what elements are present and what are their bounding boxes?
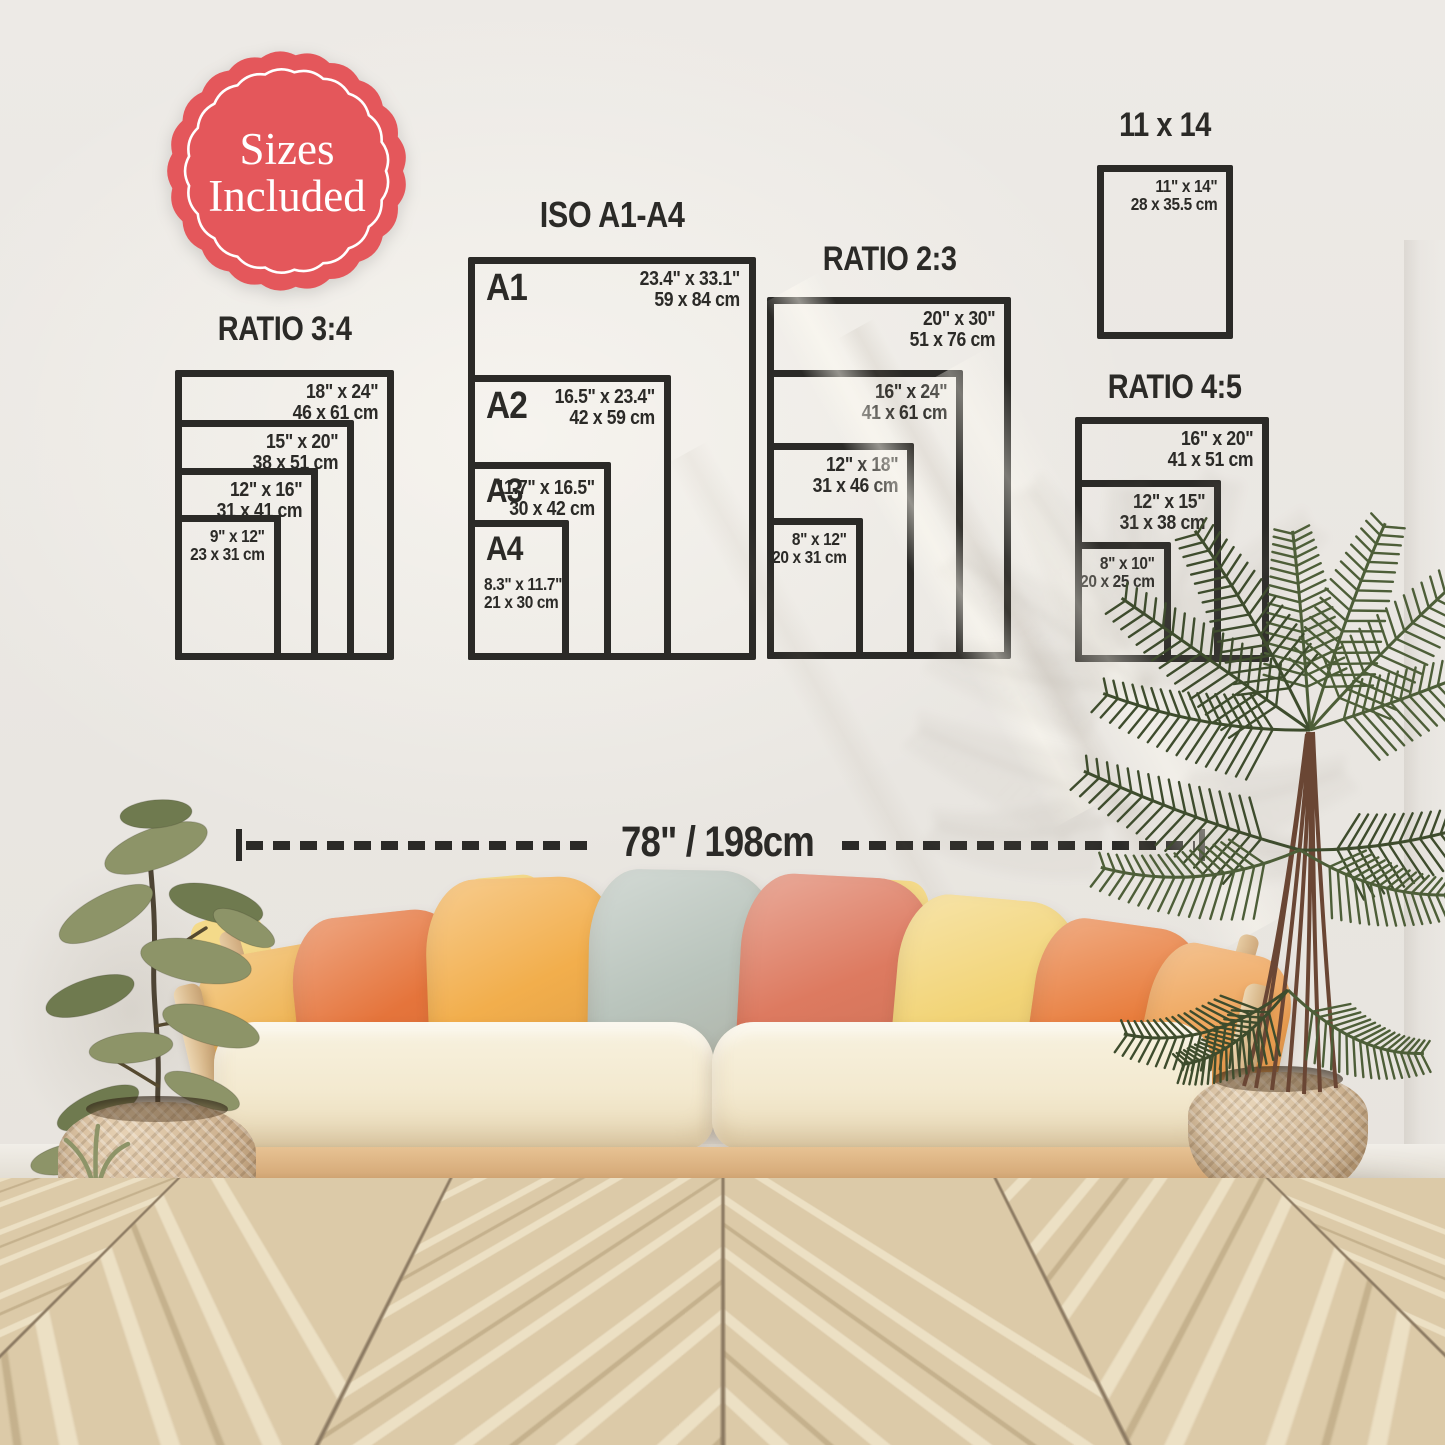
size-rect-8x12: 8" x 12"20 x 31 cm: [767, 518, 863, 659]
badge-line1: Sizes: [240, 126, 335, 173]
sofa-width-label: 78" / 198cm: [596, 818, 838, 867]
badge-line2: Included: [208, 173, 365, 220]
chart-title-ratio-3-4: RATIO 3:4: [160, 310, 410, 349]
palm-plant: [1020, 520, 1445, 1440]
badge-text: Sizes Included: [156, 40, 418, 302]
size-rect-a4: A4 8.3" x 11.7"21 x 30 cm: [468, 520, 569, 660]
chart-title-11x14: 11 x 14: [1080, 106, 1250, 145]
chart-title-iso: ISO A1-A4: [462, 194, 762, 236]
chart-title-ratio-4-5: RATIO 4:5: [1060, 368, 1290, 407]
size-rect-11x14: 11" x 14"28 x 35.5 cm: [1097, 165, 1233, 339]
size-rect-9x12: 9" x 12"23 x 31 cm: [175, 515, 281, 660]
chart-title-ratio-2-3: RATIO 2:3: [745, 240, 1035, 279]
small-pot-plant: [36, 1118, 156, 1210]
sizes-included-badge: Sizes Included: [156, 40, 418, 302]
room-scene: Sizes Included RATIO 3:4 18" x 24"46 x 6…: [0, 0, 1445, 1445]
